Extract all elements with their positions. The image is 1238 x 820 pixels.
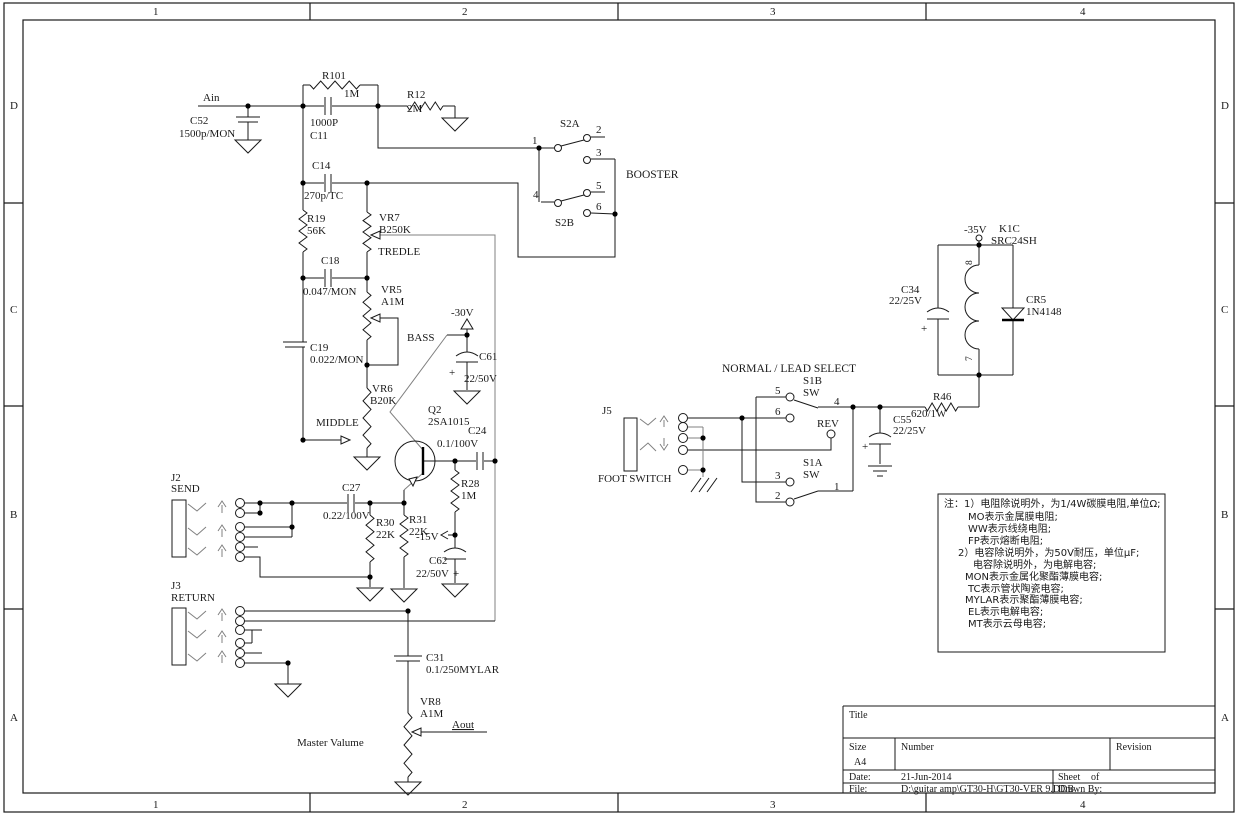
wire-segment	[843, 706, 1215, 793]
pin-label: 2	[596, 124, 602, 136]
relay-coil	[965, 265, 979, 349]
junction-dot	[285, 660, 290, 665]
label: K1C	[999, 223, 1020, 235]
label: VR6	[372, 383, 393, 395]
jack-j5	[624, 414, 688, 475]
label: B20K	[370, 395, 396, 407]
pot-vr7	[363, 212, 371, 252]
label: 22/25V	[893, 425, 926, 437]
wire-segment	[688, 438, 831, 450]
junction-dot	[405, 608, 410, 613]
vr6-wiper-arrow	[341, 436, 350, 444]
junction-dot	[375, 103, 380, 108]
terminal-circle	[584, 190, 591, 197]
rev-terminal	[827, 430, 835, 438]
ground-c52	[235, 140, 261, 153]
pin-label: 6	[775, 406, 781, 418]
label: A1M	[381, 296, 404, 308]
terminal-circle	[236, 639, 245, 648]
zone-row-label: A	[1221, 712, 1229, 724]
wire-segment	[188, 609, 226, 663]
resistor-r30	[366, 515, 374, 562]
titleblock-number-label: Number	[901, 742, 934, 753]
label: C24	[468, 425, 487, 437]
terminal-circle	[236, 607, 245, 616]
terminal-circle	[584, 210, 591, 217]
junction-dot	[612, 211, 617, 216]
terminal-circle	[236, 499, 245, 508]
label: S1B	[803, 375, 822, 387]
junction-dot	[300, 275, 305, 280]
resistor-r31	[400, 515, 408, 557]
component-labels: Ain C52 1500p/MON R101 1M 1000P C11 R12 …	[171, 70, 1062, 749]
terminal-circle	[555, 200, 562, 207]
note-line: MO表示金属膜电阻;	[968, 510, 1058, 523]
label: C18	[321, 255, 340, 267]
cap-c31	[394, 656, 422, 661]
label: SRC24SH	[991, 235, 1037, 247]
net-label-minus30v: -30V	[451, 307, 474, 319]
titleblock-title-label: Title	[849, 710, 868, 721]
junction-dot	[700, 435, 705, 440]
junction-dot	[300, 103, 305, 108]
pot-vr8	[404, 713, 412, 777]
label: 22/25V	[889, 295, 922, 307]
junction-dot	[401, 500, 406, 505]
pin-label: 8	[965, 260, 975, 265]
chassis-ground-j5	[691, 478, 717, 492]
junction-dot	[367, 500, 372, 505]
label: Q2	[428, 404, 441, 416]
zone-row-label: B	[10, 509, 17, 521]
label: R30	[376, 517, 395, 529]
capacitors	[236, 97, 949, 661]
vr8-wiper-arrow	[412, 728, 421, 736]
pin-label: 2	[775, 490, 781, 502]
label: SW	[803, 469, 820, 481]
terminal-circle	[236, 617, 245, 626]
zone-col-label: 2	[462, 6, 468, 18]
label: 1M	[344, 88, 360, 100]
note-line: EL表示电解电容;	[968, 605, 1043, 618]
zone-col-label: 1	[153, 6, 159, 18]
wire-segment	[624, 418, 637, 471]
net-label-ain: Ain	[203, 92, 220, 104]
zone-row-label: B	[1221, 509, 1228, 521]
note-line: 注：1）电阻除说明外，为1/4W碳膜电阻,单位Ω;	[944, 497, 1161, 510]
net-label-bass: BASS	[407, 332, 435, 344]
label: R31	[409, 514, 427, 526]
titleblock-file-value: D:\guitar amp\GT30-H\GT30-VER 9.DDB	[901, 784, 1074, 795]
junction-dot	[739, 415, 744, 420]
pin-label: 1	[532, 135, 538, 147]
junction-dot	[452, 532, 457, 537]
supply-arrow-15v	[441, 531, 448, 539]
cap-c19	[283, 342, 307, 347]
note-line: 2）电容除说明外，为50V耐压，单位μF;	[958, 546, 1139, 559]
pin-label: 3	[775, 470, 781, 482]
ground-j3	[275, 684, 301, 697]
label: 1000P	[310, 117, 338, 129]
net-label-aout: Aout	[452, 719, 474, 731]
label: 0.1/100V	[437, 438, 478, 450]
label: VR8	[420, 696, 441, 708]
label: MIDDLE	[316, 417, 359, 429]
cap-c11	[325, 97, 331, 115]
label: 22K	[376, 529, 395, 541]
junction-dot	[289, 500, 294, 505]
schematic-page: 1 2 3 4 1 2 3 4 D C B A D C B A	[0, 0, 1238, 815]
pin-label: 5	[596, 180, 602, 192]
junction-dot	[300, 437, 305, 442]
terminal-circle	[679, 434, 688, 443]
ground-r12	[442, 106, 468, 131]
title-block: Title Size A4 Number Revision Date: 21-J…	[843, 706, 1215, 795]
junction-dot	[877, 404, 882, 409]
wire-segment	[408, 661, 487, 782]
label: 1500p/MON	[179, 128, 235, 140]
junction-dot	[300, 180, 305, 185]
cap-c52	[236, 117, 260, 122]
label-master-volume: Master Valume	[297, 737, 364, 749]
note-line: MYLAR表示聚酯薄膜电容;	[965, 593, 1083, 606]
terminal-circle	[786, 478, 794, 486]
cap-c61-polar	[456, 352, 478, 362]
junction-dot	[257, 500, 262, 505]
titleblock-size-value: A4	[854, 757, 866, 768]
net-label-minus35v: -35V	[964, 224, 987, 236]
ground-vr6	[354, 457, 380, 470]
label: 1N4148	[1026, 306, 1062, 318]
junction-dot	[367, 574, 372, 579]
zone-row-label: D	[10, 100, 18, 112]
pin-label: 7	[965, 356, 975, 361]
terminal-circle	[236, 523, 245, 532]
cap-c18	[325, 269, 331, 287]
pin-label: 4	[533, 189, 539, 201]
terminal-circle	[584, 135, 591, 142]
titleblock-of-label: of	[1091, 772, 1100, 783]
terminal-circle	[679, 446, 688, 455]
titleblock-size-label: Size	[849, 742, 867, 753]
schematic-sheet: 1 2 3 4 1 2 3 4 D C B A D C B A	[0, 0, 1238, 815]
ground-r30	[357, 588, 383, 601]
label: SW	[803, 387, 820, 399]
resistor-r19	[299, 210, 307, 252]
label: C31	[426, 652, 444, 664]
label: A1M	[420, 708, 443, 720]
terminal-circle	[786, 414, 794, 422]
label: 0.022/MON	[310, 354, 364, 366]
label: +	[862, 441, 868, 453]
cap-c55-polar	[869, 433, 891, 444]
wire-segment	[172, 500, 186, 557]
label-normal-lead-select: NORMAL / LEAD SELECT	[722, 363, 856, 375]
label: +	[449, 367, 455, 379]
note-line: MT表示云母电容;	[968, 617, 1046, 630]
terminal-circle	[679, 466, 688, 475]
junction-dot	[245, 103, 250, 108]
label-booster: BOOSTER	[626, 169, 679, 181]
label: 620/1W	[911, 408, 947, 420]
zone-row-label: C	[1221, 304, 1228, 316]
zone-col-label: 1	[153, 799, 159, 811]
terminal-circle	[786, 393, 794, 401]
wire-segment	[303, 106, 341, 440]
net-label-rev: REV	[817, 418, 839, 430]
junction-dot	[364, 275, 369, 280]
label: 0.1/250MYLAR	[426, 664, 500, 676]
label: C11	[310, 130, 328, 142]
junction-dot	[850, 404, 855, 409]
terminal-circle	[236, 649, 245, 658]
cap-c34-polar	[927, 308, 949, 319]
note-line: TC表示管状陶瓷电容;	[967, 582, 1064, 595]
zone-row-label: D	[1221, 100, 1229, 112]
label: S2A	[560, 118, 580, 130]
terminal-circle	[679, 423, 688, 432]
zone-col-label: 4	[1080, 799, 1086, 811]
label: CR5	[1026, 294, 1047, 306]
titleblock-date-label: Date:	[849, 772, 871, 783]
label: 0.047/MON	[303, 286, 357, 298]
label: J3	[171, 580, 181, 592]
wire-segment	[4, 3, 1234, 812]
terminal-circle	[584, 157, 591, 164]
label: R12	[407, 89, 425, 101]
titleblock-file-label: File:	[849, 784, 867, 795]
label: 56K	[307, 225, 326, 237]
zone-col-label: 4	[1080, 6, 1086, 18]
label: C52	[190, 115, 208, 127]
transistor-q2	[395, 441, 435, 486]
junction-dot	[492, 458, 497, 463]
label: C27	[342, 482, 361, 494]
label: C61	[479, 351, 497, 363]
junction-dot	[452, 458, 457, 463]
jack-j3	[172, 607, 245, 668]
label: 2M	[407, 103, 423, 115]
pin-label: 6	[596, 201, 602, 213]
terminal-circle	[236, 659, 245, 668]
pin-label: 4	[834, 396, 840, 408]
wire-segment	[4, 3, 1234, 812]
ground-c61	[454, 391, 480, 404]
wire-segment	[172, 608, 186, 665]
jack-j2	[172, 499, 245, 562]
diode-cr5	[1002, 308, 1024, 320]
label: 0.22/100V	[323, 510, 370, 522]
zone-row-label: C	[10, 304, 17, 316]
junction-dot	[257, 510, 262, 515]
ground-r31	[391, 589, 417, 602]
ground-c62	[442, 584, 468, 597]
relay-k1c	[965, 235, 1024, 349]
label: S1A	[803, 457, 823, 469]
label: +	[921, 323, 927, 335]
pin-label: 1	[834, 481, 840, 493]
label: FOOT SWITCH	[598, 473, 671, 485]
note-line: 电容除说明外，为电解电容;	[973, 558, 1096, 571]
label: R46	[933, 391, 952, 403]
label: 1M	[461, 490, 477, 502]
pin-label: 3	[596, 147, 602, 159]
label: +	[453, 568, 459, 580]
terminal-circle	[555, 145, 562, 152]
pin-label: 5	[775, 385, 781, 397]
label: C19	[310, 342, 329, 354]
label: B250K	[379, 224, 411, 236]
junction-dot	[364, 180, 369, 185]
terminal-circle	[236, 543, 245, 552]
pot-vr5	[363, 292, 371, 340]
junction-dot	[464, 332, 469, 337]
label: 270p/TC	[304, 190, 343, 202]
titleblock-revision-label: Revision	[1116, 742, 1152, 753]
wire-segment	[539, 137, 615, 257]
label: TREDLE	[378, 246, 420, 258]
label: R19	[307, 213, 326, 225]
terminal-circle	[236, 509, 245, 518]
label: C62	[429, 555, 447, 567]
label: 22/50V	[464, 373, 497, 385]
cap-c24	[477, 452, 483, 470]
label: RETURN	[171, 592, 215, 604]
label: C14	[312, 160, 331, 172]
label: R28	[461, 478, 480, 490]
zone-row-label: A	[10, 712, 18, 724]
wire-segment	[188, 501, 226, 557]
zone-col-label: 3	[770, 6, 776, 18]
wire-segment	[640, 416, 668, 451]
label: VR7	[379, 212, 400, 224]
label: J5	[602, 405, 612, 417]
resistor-r28	[451, 470, 459, 512]
sheet-border: 1 2 3 4 1 2 3 4 D C B A D C B A	[4, 3, 1234, 812]
junction-dots	[245, 103, 981, 665]
note-line: FP表示熔断电阻;	[968, 534, 1043, 547]
terminal-circle	[786, 498, 794, 506]
label: SEND	[171, 483, 200, 495]
label: VR5	[381, 284, 402, 296]
junction-dot	[700, 467, 705, 472]
titleblock-sheet-label: Sheet	[1058, 772, 1080, 783]
titleblock-date-value: 21-Jun-2014	[901, 772, 952, 783]
note-line: MON表示金属化聚酯薄膜电容;	[965, 570, 1102, 583]
terminal-circle	[236, 553, 245, 562]
earth-ground-c55	[868, 466, 892, 476]
junction-dot	[364, 362, 369, 367]
label: 22/50V	[416, 568, 449, 580]
switch-s2	[555, 135, 591, 217]
junction-dot	[976, 372, 981, 377]
terminal-circle	[679, 414, 688, 423]
label: 2SA1015	[428, 416, 470, 428]
label: S2B	[555, 217, 574, 229]
vr5-wiper-arrow	[371, 314, 380, 322]
zone-col-label: 3	[770, 799, 776, 811]
terminal-circle	[236, 533, 245, 542]
label: 22K	[409, 526, 428, 538]
terminal-circle	[236, 626, 245, 635]
junction-dot	[289, 524, 294, 529]
note-line: WW表示线绕电阻;	[968, 522, 1051, 535]
label: R101	[322, 70, 346, 82]
zone-col-label: 2	[462, 799, 468, 811]
titleblock-drawnby-label: Drawn By:	[1058, 784, 1102, 795]
notes-box: 注：1）电阻除说明外，为1/4W碳膜电阻,单位Ω; MO表示金属膜电阻; WW表…	[938, 494, 1165, 652]
resistors	[299, 81, 958, 777]
junction-dot	[976, 242, 981, 247]
